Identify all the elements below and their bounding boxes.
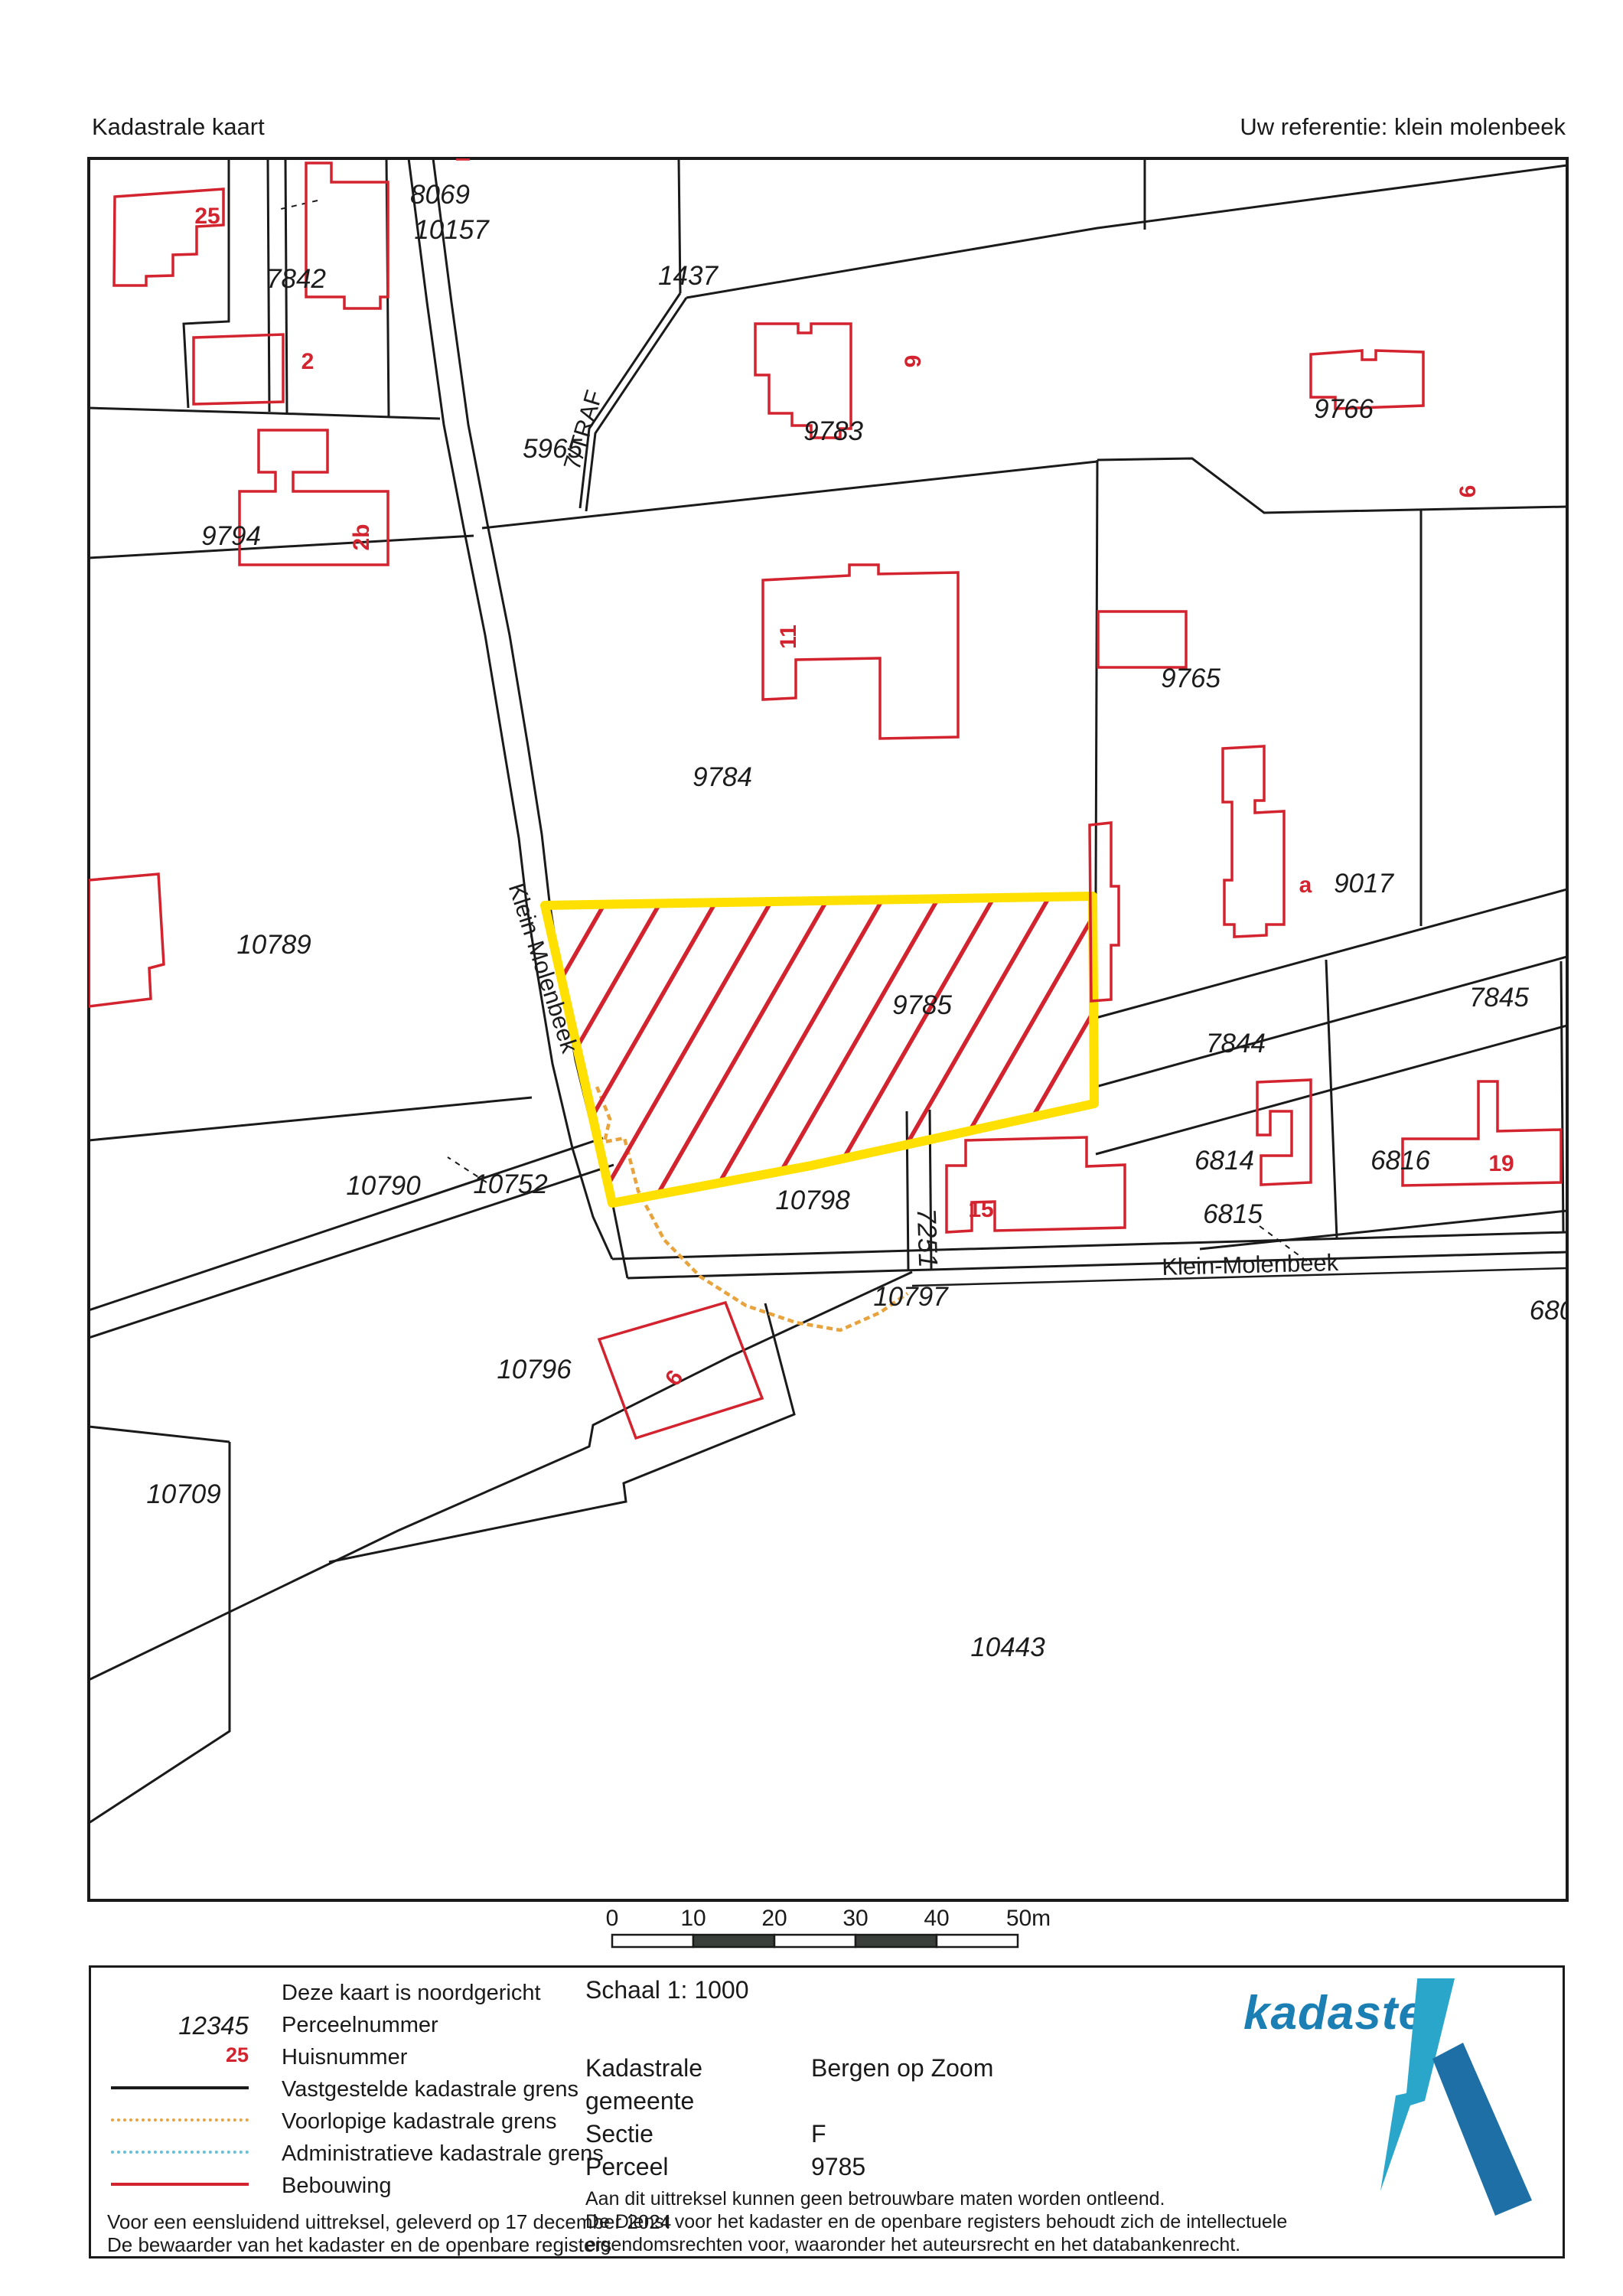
parcel-label: 10443 [970, 1632, 1045, 1662]
scale-bar: 01020304050m [606, 1906, 1051, 1947]
red-line-symbol [111, 2183, 249, 2186]
legend-row-north: Deze kaart is noordgericht [107, 1979, 582, 2011]
disclaimer-line: De Dienst voor het kadaster en de openba… [585, 2210, 1287, 2233]
scale-tick-label: 50m [1006, 1906, 1051, 1931]
parcel-label: 9784 [693, 762, 752, 792]
detail-row-gemeente: Kadastrale gemeente Bergen op Zoom [585, 2052, 1213, 2118]
house-number: 11 [776, 625, 801, 649]
legend-row-administrative-boundary: Administratieve kadastrale grens [107, 2140, 582, 2172]
legend-label: Perceelnummer [282, 2013, 438, 2038]
house-number: 6 [1455, 485, 1481, 498]
orange-line-symbol [111, 2118, 249, 2122]
parcel-label: 10789 [236, 930, 311, 960]
disclaimer-line: eigendomsrechten voor, waaronder het aut… [585, 2233, 1287, 2256]
legend-label: Administratieve kadastrale grens [282, 2141, 604, 2167]
parcel-details: Kadastrale gemeente Bergen op Zoom Secti… [585, 2052, 1213, 2183]
parcel-label: 9765 [1161, 664, 1221, 693]
street-label: Klein-Molenbeek [1162, 1249, 1339, 1280]
house-number: 9 [901, 355, 926, 368]
detail-row-sectie: Sectie F [585, 2118, 1213, 2151]
house-number: 2 [301, 349, 314, 374]
disclaimer-line: Aan dit uittreksel kunnen geen betrouwba… [585, 2187, 1287, 2210]
parcel-label: 9794 [201, 521, 261, 551]
parcel-label: 10797 [873, 1282, 949, 1312]
parcel-label: 10790 [346, 1171, 421, 1201]
disclaimer: Aan dit uittreksel kunnen geen betrouwba… [585, 2187, 1287, 2256]
legend-label: Vastgestelde kadastrale grens [282, 2077, 578, 2102]
legend-label: Bebouwing [282, 2174, 392, 2199]
parcel-label: 9785 [892, 990, 952, 1020]
cadastral-map: 7842806910157143759659783976697949784976… [0, 0, 1623, 2296]
scale-tick-label: 10 [680, 1906, 706, 1931]
kadaster-logo: kadaster [1243, 1978, 1550, 2231]
scale-bar-segment [774, 1935, 855, 1947]
house-number-sample: 25 [111, 2043, 249, 2067]
black-line-symbol [111, 2086, 249, 2089]
parcel-label: 6816 [1370, 1146, 1430, 1176]
parcel-label: 8069 [410, 180, 470, 210]
parcel-label: 9783 [803, 416, 863, 446]
parcel-label: 9766 [1314, 394, 1374, 424]
legend-row-parcelnumber: 12345 Perceelnummer [107, 2011, 582, 2043]
scale-tick-label: 30 [842, 1906, 868, 1931]
legend-label: Deze kaart is noordgericht [282, 1981, 541, 2006]
parcel-label: 7251 [911, 1208, 943, 1268]
legend-row-housenumber: 25 Huisnummer [107, 2043, 582, 2076]
house-number: 19 [1488, 1151, 1514, 1176]
detail-value: F [811, 2118, 826, 2151]
scale-text: Schaal 1: 1000 [585, 1976, 1213, 2004]
scale-tick-label: 20 [761, 1906, 787, 1931]
scale-bar-segment [693, 1935, 774, 1947]
parcel-label: 10709 [146, 1479, 220, 1509]
parcel-label: 9017 [1334, 869, 1394, 899]
kadaster-logo-mark [1243, 1978, 1550, 2231]
parcel-label: 7844 [1206, 1029, 1266, 1058]
detail-label: Perceel [585, 2151, 811, 2183]
parcel-number-sample: 12345 [111, 2011, 249, 2040]
house-number: 15 [968, 1197, 993, 1222]
parcel-label: 10798 [775, 1186, 850, 1215]
legend-label: Voorlopige kadastrale grens [282, 2109, 557, 2135]
legend-row-established-boundary: Vastgestelde kadastrale grens [107, 2076, 582, 2108]
parcel-label: 10796 [497, 1355, 572, 1384]
parcel-label: 6815 [1203, 1199, 1263, 1229]
detail-row-perceel: Perceel 9785 [585, 2151, 1213, 2183]
legend-row-provisional-boundary: Voorlopige kadastrale grens [107, 2108, 582, 2140]
map-details: Schaal 1: 1000 Kadastrale gemeente Berge… [585, 1976, 1213, 2183]
scale-bar-segment [855, 1935, 937, 1947]
parcel-label: 10157 [414, 215, 490, 245]
legend: Deze kaart is noordgericht 12345 Perceel… [107, 1979, 582, 2204]
detail-value: Bergen op Zoom [811, 2052, 993, 2118]
detail-label: Kadastrale gemeente [585, 2052, 811, 2118]
scale-bar-segment [612, 1935, 693, 1947]
parcel-label: 7845 [1469, 983, 1529, 1013]
cyan-line-symbol [111, 2151, 249, 2154]
parcel-label: 10752 [473, 1169, 547, 1199]
house-number: 25 [194, 204, 220, 229]
house-number: a [1299, 872, 1312, 898]
detail-label: Sectie [585, 2118, 811, 2151]
parcel-label: 7842 [266, 264, 326, 294]
legend-row-buildings: Bebouwing [107, 2172, 582, 2204]
parcel-label: 6814 [1194, 1146, 1254, 1176]
detail-value: 9785 [811, 2151, 865, 2183]
scale-bar-segment [937, 1935, 1018, 1947]
scale-tick-label: 40 [924, 1906, 949, 1931]
scale-tick-label: 0 [606, 1906, 619, 1931]
house-number: 2b [349, 523, 374, 550]
parcel-label: 1437 [658, 261, 719, 291]
legend-label: Huisnummer [282, 2045, 407, 2070]
page: { "header": { "title": "Kadastrale kaart… [0, 0, 1623, 2296]
